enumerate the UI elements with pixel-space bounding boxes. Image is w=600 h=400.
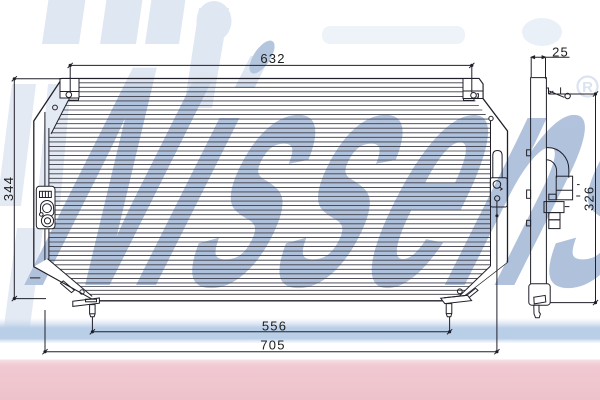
svg-text:705: 705 bbox=[260, 338, 285, 353]
svg-text:344: 344 bbox=[1, 176, 16, 201]
svg-text:25: 25 bbox=[552, 44, 569, 59]
svg-text:326: 326 bbox=[581, 186, 596, 211]
svg-text:632: 632 bbox=[260, 51, 285, 66]
svg-text:556: 556 bbox=[262, 319, 287, 334]
svg-text:R: R bbox=[582, 79, 593, 96]
